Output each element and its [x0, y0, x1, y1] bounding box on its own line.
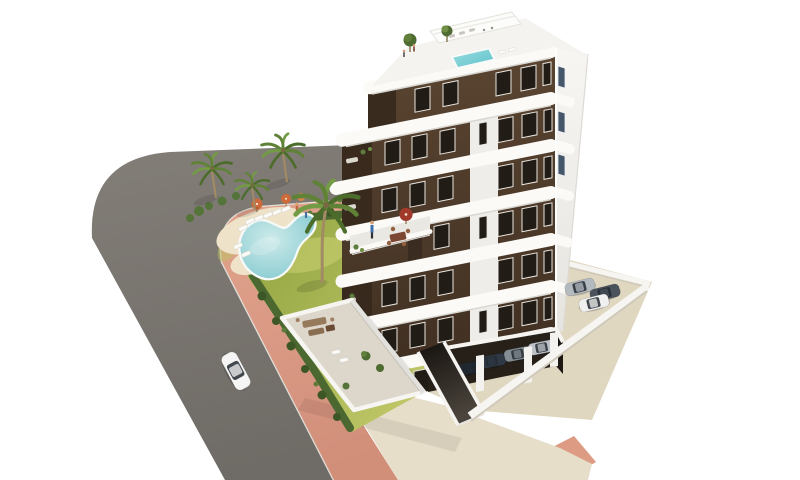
window — [558, 111, 565, 133]
terrace-plant — [353, 244, 358, 249]
architectural-render — [0, 0, 800, 480]
terrace-plant — [360, 248, 364, 252]
terrace-planter — [408, 238, 422, 262]
window — [558, 66, 565, 88]
window — [558, 154, 565, 176]
render-canvas — [0, 0, 800, 480]
pillar — [476, 355, 484, 392]
